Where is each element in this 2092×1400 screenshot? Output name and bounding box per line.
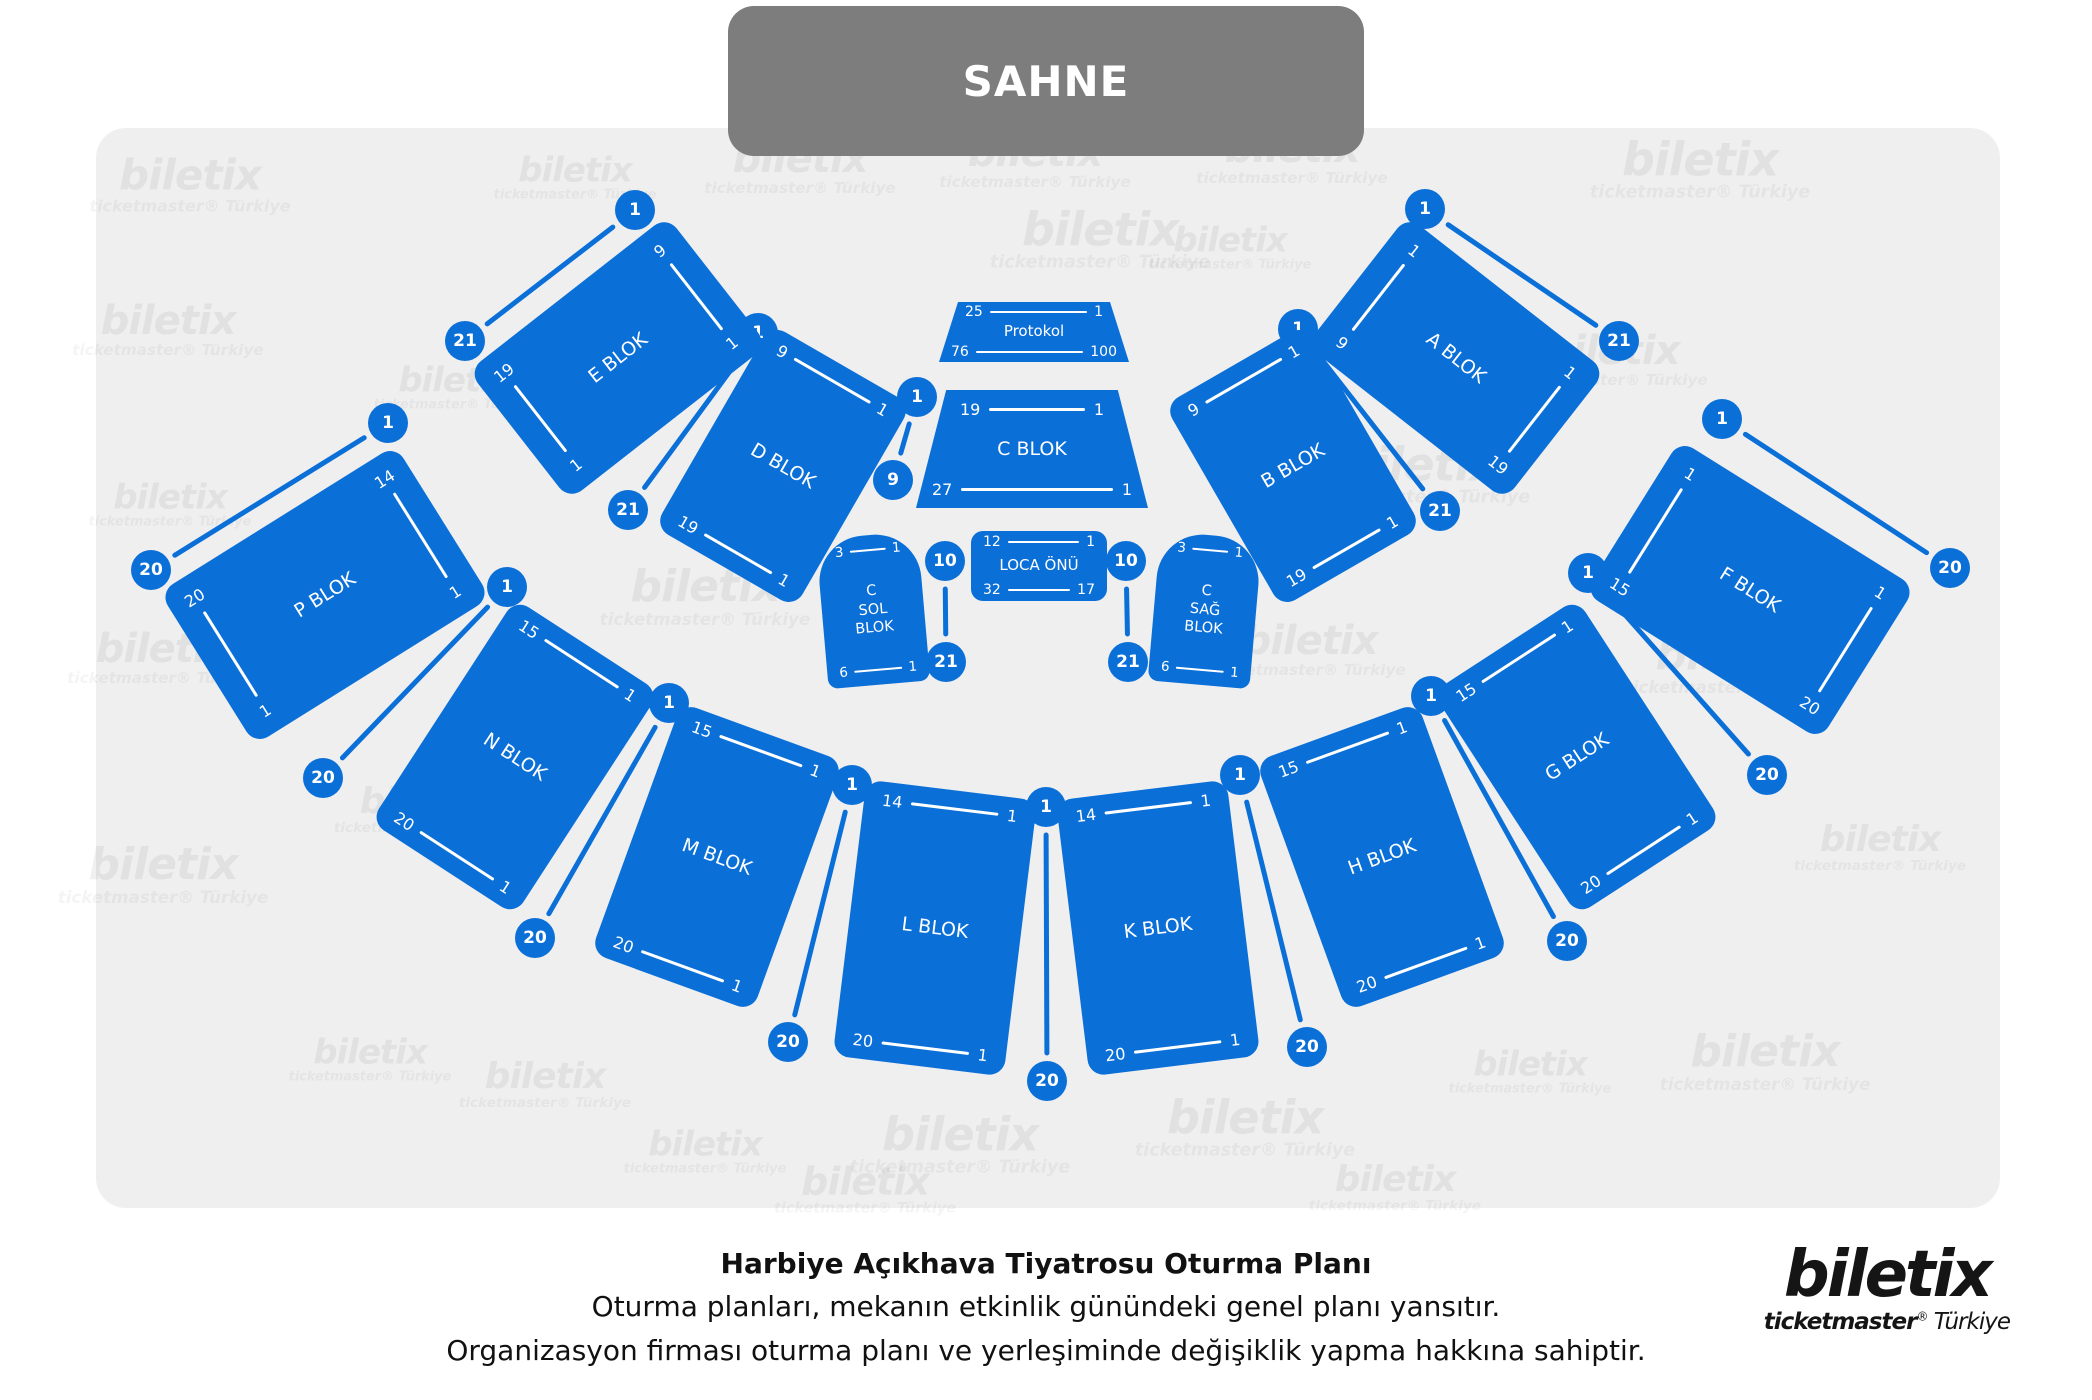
row-line xyxy=(1175,666,1224,673)
seating-map-area: biletixticketmaster® Türkiyebiletixticke… xyxy=(96,128,2000,1208)
row-line xyxy=(849,547,886,553)
row-number: 1 xyxy=(1229,664,1239,681)
seating-plan-page: biletixticketmaster® Türkiyebiletixticke… xyxy=(0,0,2092,1400)
stage: SAHNE xyxy=(728,6,1364,156)
row-number: 1 xyxy=(1234,544,1244,561)
row-marker-circle: 20 xyxy=(1930,548,1970,588)
row-marker-circle: 20 xyxy=(131,550,171,590)
row-line xyxy=(1008,589,1070,592)
stage-label: SAHNE xyxy=(963,57,1130,106)
row-number: 1 xyxy=(1229,1030,1241,1050)
aisle-line xyxy=(1127,589,1128,634)
row-line xyxy=(1192,547,1229,553)
row-marker-circle: 1 xyxy=(487,567,527,607)
row-range: 271 xyxy=(932,480,1132,499)
row-range: 76100 xyxy=(951,344,1117,360)
row-marker-circle: 20 xyxy=(1547,921,1587,961)
row-number: 100 xyxy=(1090,344,1117,360)
row-number: 1 xyxy=(1871,582,1890,604)
row-number: 6 xyxy=(839,664,849,681)
seating-block-k[interactable]: K BLOK141201 xyxy=(1056,780,1261,1077)
row-line xyxy=(976,351,1083,354)
row-marker-circle: 20 xyxy=(768,1022,808,1062)
row-number: 1 xyxy=(1200,791,1212,811)
row-number: 3 xyxy=(1177,539,1187,556)
row-marker-circle: 21 xyxy=(608,490,648,530)
row-line xyxy=(989,408,1084,411)
row-line xyxy=(911,802,998,816)
row-number: 1 xyxy=(1094,304,1103,320)
seating-block-csol[interactable]: C SOL BLOK3161 xyxy=(816,531,931,689)
row-line xyxy=(1008,541,1079,544)
row-marker-circle: 20 xyxy=(515,918,555,958)
row-marker-circle: 1 xyxy=(368,403,408,443)
row-number: 17 xyxy=(1077,582,1095,598)
row-marker-circle: 20 xyxy=(1747,755,1787,795)
row-marker-circle: 10 xyxy=(1106,541,1146,581)
row-line xyxy=(1105,801,1192,815)
row-number: 9 xyxy=(650,240,670,261)
row-marker-circle: 21 xyxy=(1108,642,1148,682)
row-marker-circle: 21 xyxy=(445,321,485,361)
row-marker-circle: 21 xyxy=(926,642,966,682)
row-number: 6 xyxy=(1160,658,1170,675)
row-number: 9 xyxy=(1332,333,1352,354)
row-line xyxy=(882,1041,969,1055)
row-number: 1 xyxy=(1681,463,1700,485)
row-range: 121 xyxy=(983,534,1095,550)
row-number: 1 xyxy=(1086,534,1095,550)
seating-block-protokol[interactable]: Protokol25176100 xyxy=(939,302,1129,362)
row-marker-circle: 10 xyxy=(925,541,965,581)
seating-block-loca[interactable]: LOCA ÖNÜ1213217 xyxy=(971,531,1107,601)
row-number: 14 xyxy=(1075,805,1098,826)
row-number: 27 xyxy=(932,480,952,499)
row-number: 14 xyxy=(881,791,904,812)
row-range: 3217 xyxy=(983,582,1095,598)
row-number: 1 xyxy=(1404,240,1424,261)
row-marker-circle: 20 xyxy=(1287,1027,1327,1067)
row-marker-circle: 9 xyxy=(873,460,913,500)
row-marker-circle: 1 xyxy=(1702,399,1742,439)
row-range: 191 xyxy=(960,400,1104,419)
row-line xyxy=(1134,1040,1221,1054)
row-marker-circle: 20 xyxy=(303,758,343,798)
row-number: 1 xyxy=(1122,480,1132,499)
row-number: 25 xyxy=(965,304,983,320)
row-line xyxy=(990,311,1087,314)
row-number: 20 xyxy=(852,1030,875,1051)
row-number: 12 xyxy=(983,534,1001,550)
seating-block-c[interactable]: C BLOK191271 xyxy=(916,390,1148,508)
row-number: 20 xyxy=(1104,1044,1127,1065)
row-number: 1 xyxy=(1560,362,1580,383)
row-range: 251 xyxy=(965,304,1103,320)
row-number: 1 xyxy=(908,658,918,675)
aisle-line xyxy=(1046,835,1047,1053)
seating-block-csag[interactable]: C SAĞ BLOK3161 xyxy=(1148,531,1263,689)
seating-block-l[interactable]: L BLOK141201 xyxy=(833,780,1038,1077)
row-marker-circle: 21 xyxy=(1420,491,1460,531)
row-marker-circle: 20 xyxy=(1027,1061,1067,1101)
row-line xyxy=(854,666,903,673)
row-marker-circle: 21 xyxy=(1599,321,1639,361)
row-number: 1 xyxy=(1094,400,1104,419)
row-number: 76 xyxy=(951,344,969,360)
row-number: 19 xyxy=(960,400,980,419)
row-marker-circle: 1 xyxy=(615,190,655,230)
row-number: 32 xyxy=(983,582,1001,598)
row-line xyxy=(961,488,1112,491)
row-number: 1 xyxy=(891,539,901,556)
row-number: 3 xyxy=(834,544,844,561)
aisle-line xyxy=(901,424,909,453)
